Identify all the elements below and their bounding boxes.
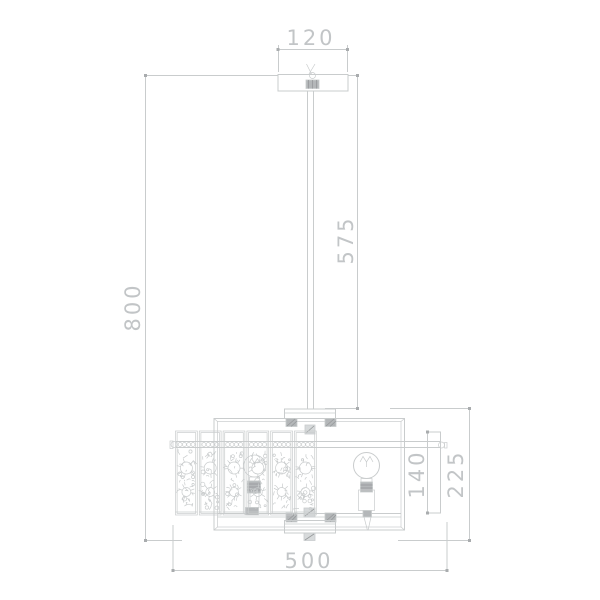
rail-knob-right — [439, 442, 445, 448]
socket-holder — [359, 490, 375, 511]
lamp-dimension-drawing: 120 800 575 140 225 500 — [0, 0, 600, 600]
dim-label-225: 225 — [444, 449, 468, 498]
rail-knob-left — [171, 442, 177, 448]
drawing-linework — [0, 0, 600, 600]
dim-label-140: 140 — [405, 449, 429, 498]
crystal-rail — [170, 441, 447, 449]
filament-icon — [360, 457, 373, 463]
dim-label-500: 500 — [284, 549, 333, 573]
ceiling-canopy — [278, 64, 348, 91]
dim-label-800: 800 — [121, 282, 145, 331]
hook-ring-icon — [310, 73, 316, 79]
screw-base — [361, 482, 373, 492]
top-plate — [285, 409, 336, 419]
central-couplers — [304, 425, 315, 541]
hanging-rod — [308, 91, 314, 409]
dim-label-120: 120 — [286, 26, 335, 50]
dim-label-575: 575 — [334, 215, 358, 264]
right-bulb — [354, 453, 380, 531]
hook-wire — [307, 64, 312, 74]
